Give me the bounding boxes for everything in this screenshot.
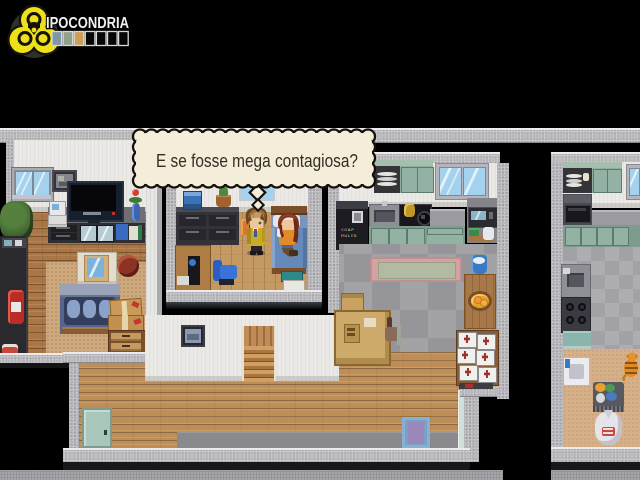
svg-text:E se fosse mega contagiosa?: E se fosse mega contagiosa? [156, 150, 358, 171]
svg-text:IPOCONDRIA: IPOCONDRIA [46, 15, 129, 32]
